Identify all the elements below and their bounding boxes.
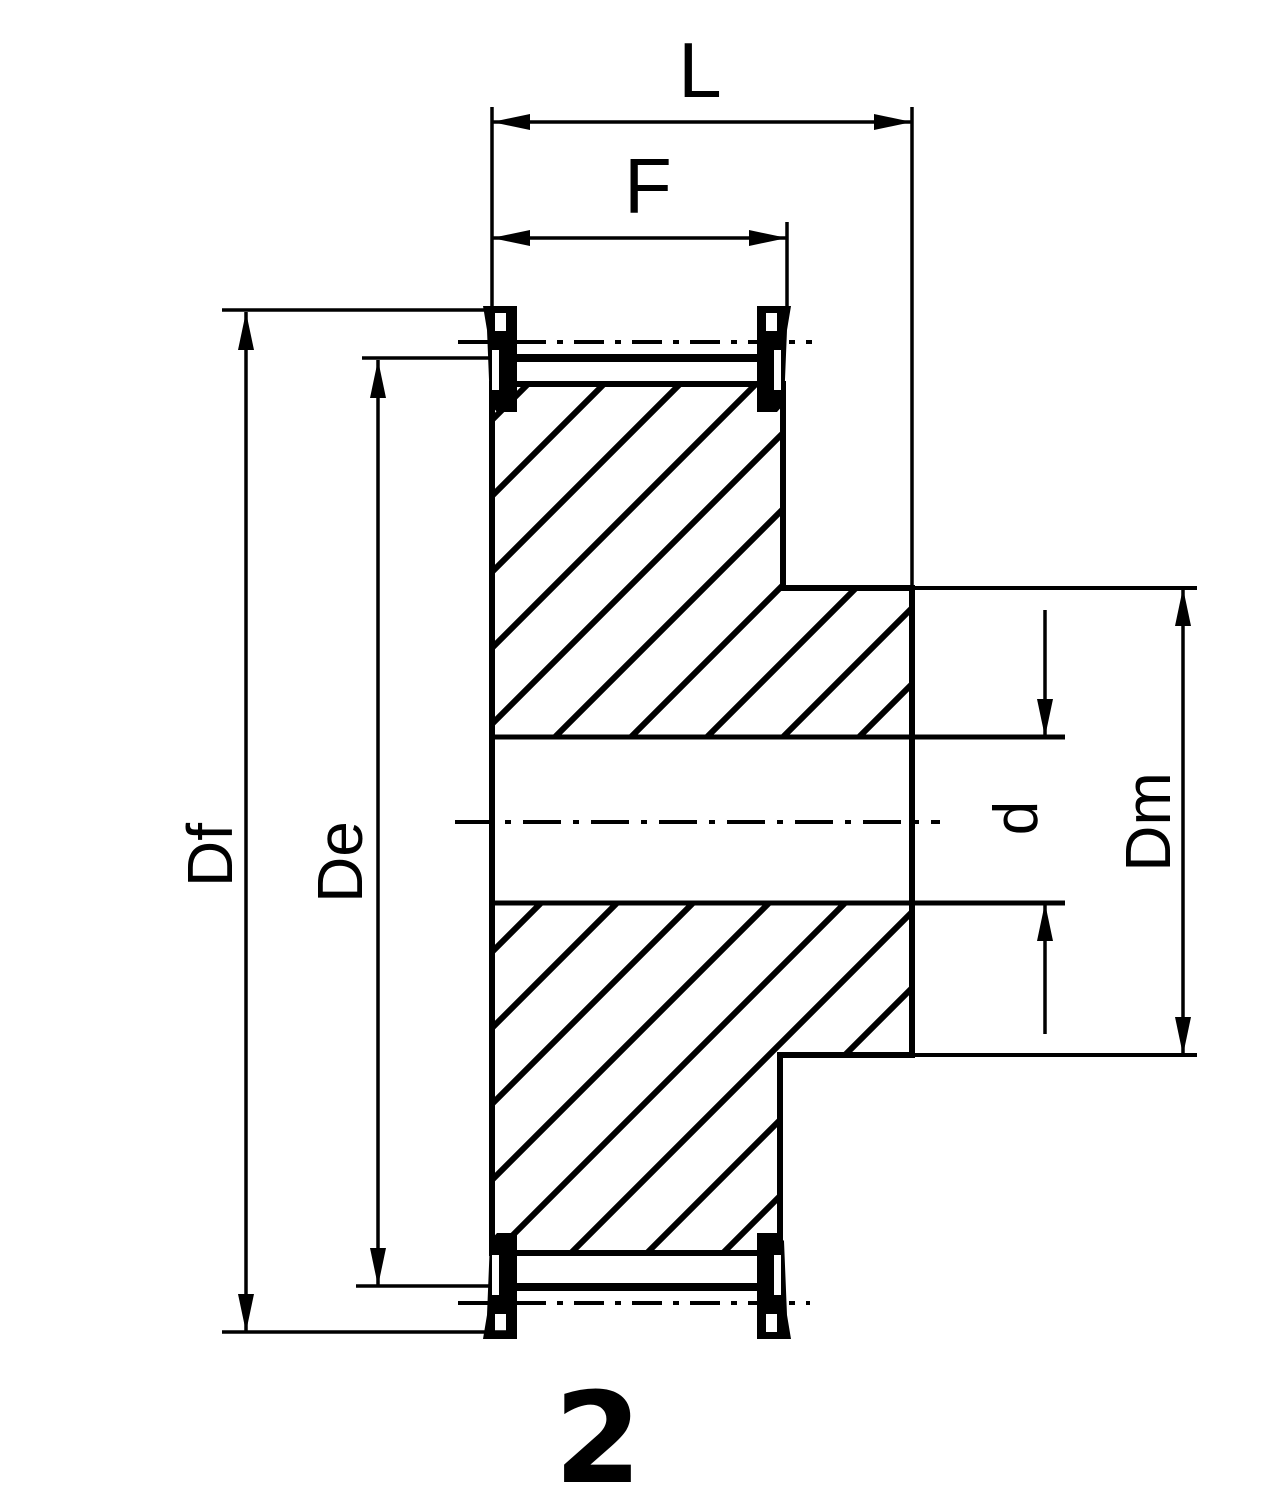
pulley-technical-drawing: L F Df De d Dm 2	[0, 0, 1281, 1500]
arrowhead-bottom	[1175, 1017, 1191, 1055]
arrowhead-right	[874, 114, 912, 130]
arrowhead-top	[1175, 588, 1191, 626]
dimension-label-L: L	[678, 26, 721, 114]
arrowhead-left	[492, 230, 530, 246]
arrowhead-right	[749, 230, 787, 246]
lower-body-hatch	[492, 903, 912, 1253]
arrowhead-lower	[1037, 903, 1053, 941]
dimension-d: d	[982, 610, 1053, 1034]
arrowhead-bottom	[370, 1248, 386, 1286]
arrowhead-left	[492, 114, 530, 130]
dimension-label-Dm: Dm	[1112, 772, 1184, 872]
figure-number: 2	[554, 1365, 642, 1500]
upper-body-hatch	[492, 384, 912, 737]
arrowhead-top	[238, 312, 254, 350]
dimension-label-De: De	[304, 821, 376, 903]
dimension-label-d: d	[982, 801, 1051, 835]
arrowhead-bottom	[238, 1294, 254, 1332]
dimension-F: F	[492, 142, 787, 306]
dimension-Dm: Dm	[1112, 588, 1191, 1055]
dimension-label-Df: Df	[174, 823, 246, 887]
drawing-canvas: L F Df De d Dm 2	[0, 0, 1281, 1500]
pulley-cross-section	[455, 306, 1197, 1339]
arrowhead-top	[370, 360, 386, 398]
flange-bottom-right	[757, 1233, 791, 1339]
dimension-label-F: F	[624, 142, 672, 230]
arrowhead-upper	[1037, 699, 1053, 737]
